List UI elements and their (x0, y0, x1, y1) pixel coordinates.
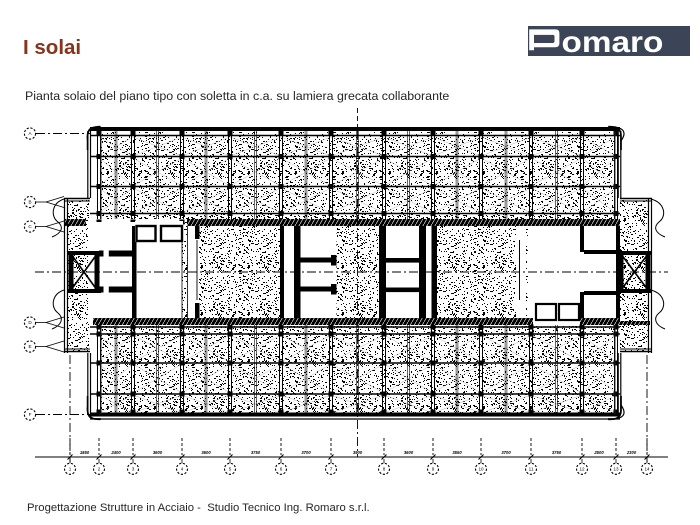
svg-text:omaro: omaro (562, 26, 664, 59)
